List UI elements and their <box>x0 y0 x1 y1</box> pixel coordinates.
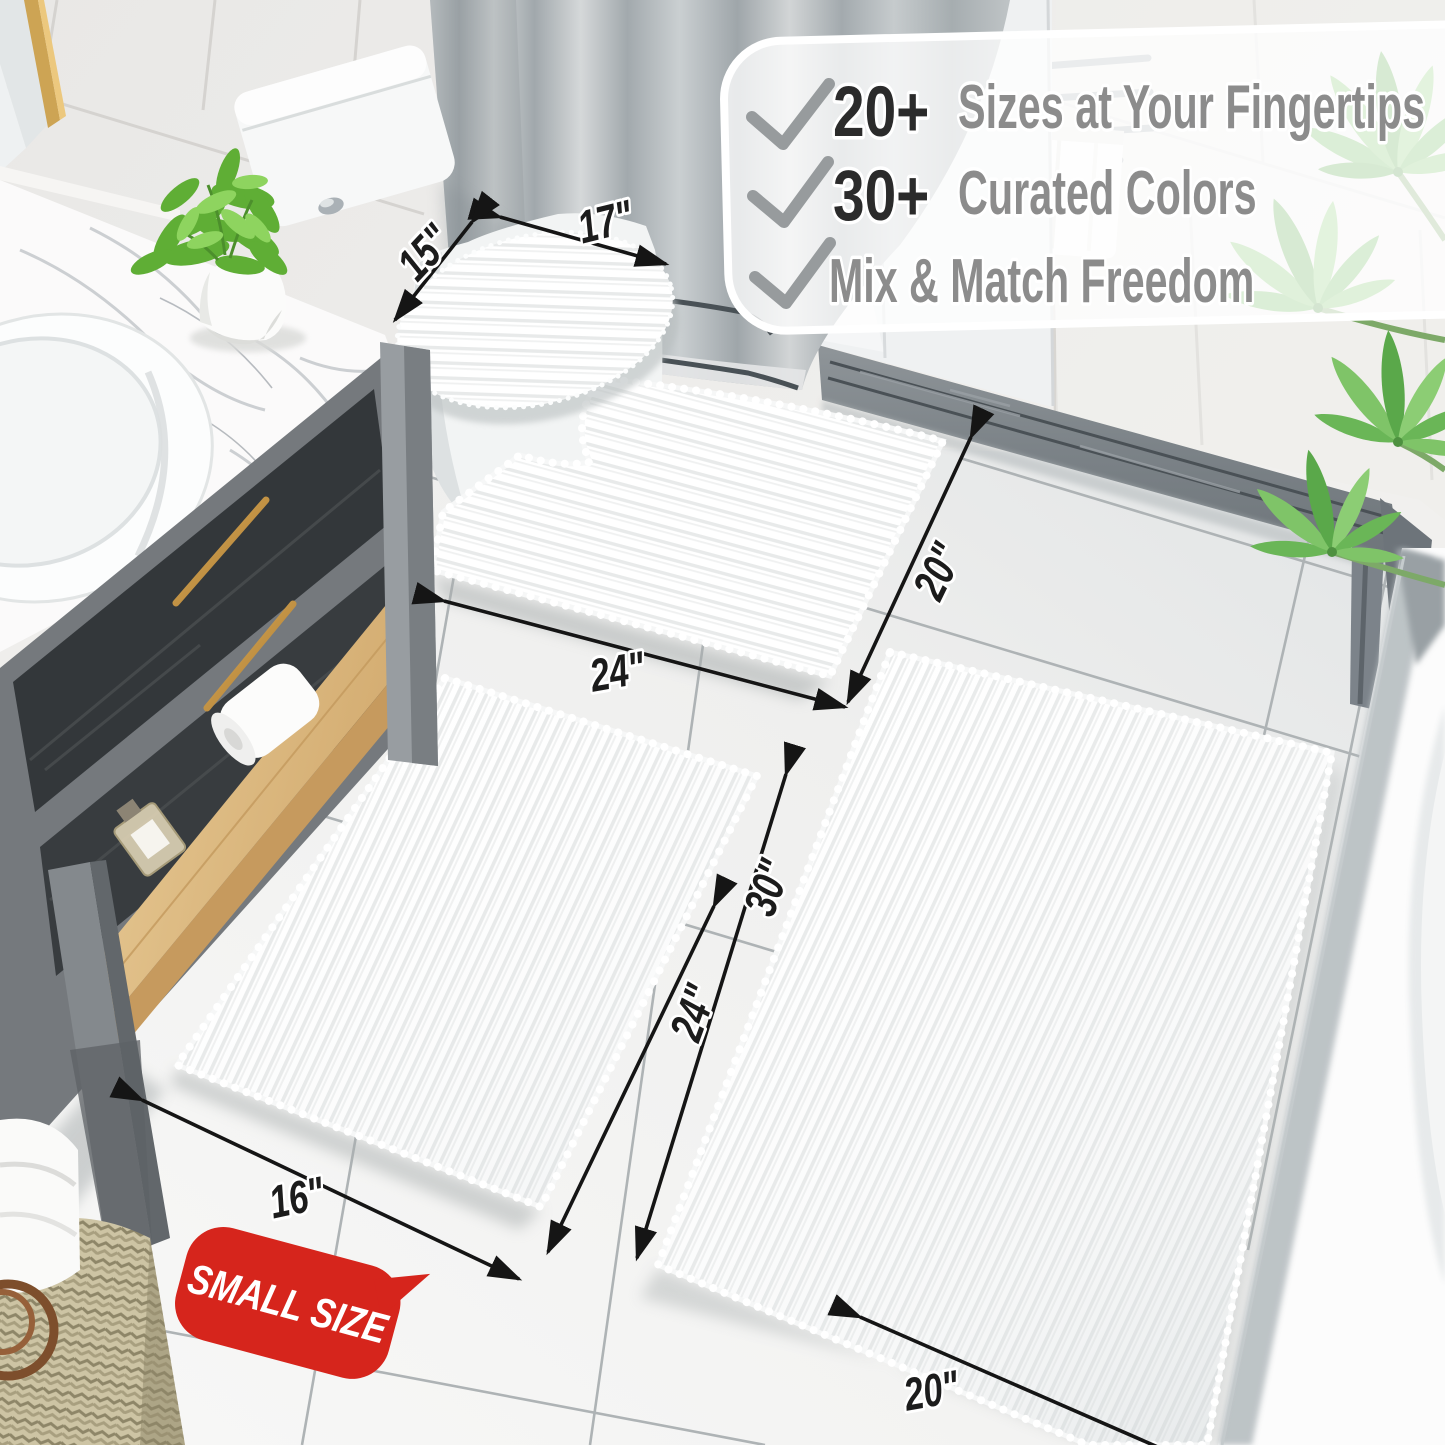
svg-text:30+: 30+ <box>833 156 929 236</box>
svg-text:20": 20" <box>899 1360 963 1421</box>
svg-text:Mix & Match Freedom: Mix & Match Freedom <box>829 247 1254 317</box>
svg-text:24": 24" <box>585 641 649 702</box>
svg-text:20+: 20+ <box>833 72 929 152</box>
svg-text:Sizes at Your Fingertips: Sizes at Your Fingertips <box>958 73 1425 142</box>
svg-text:Curated Colors: Curated Colors <box>958 159 1257 228</box>
